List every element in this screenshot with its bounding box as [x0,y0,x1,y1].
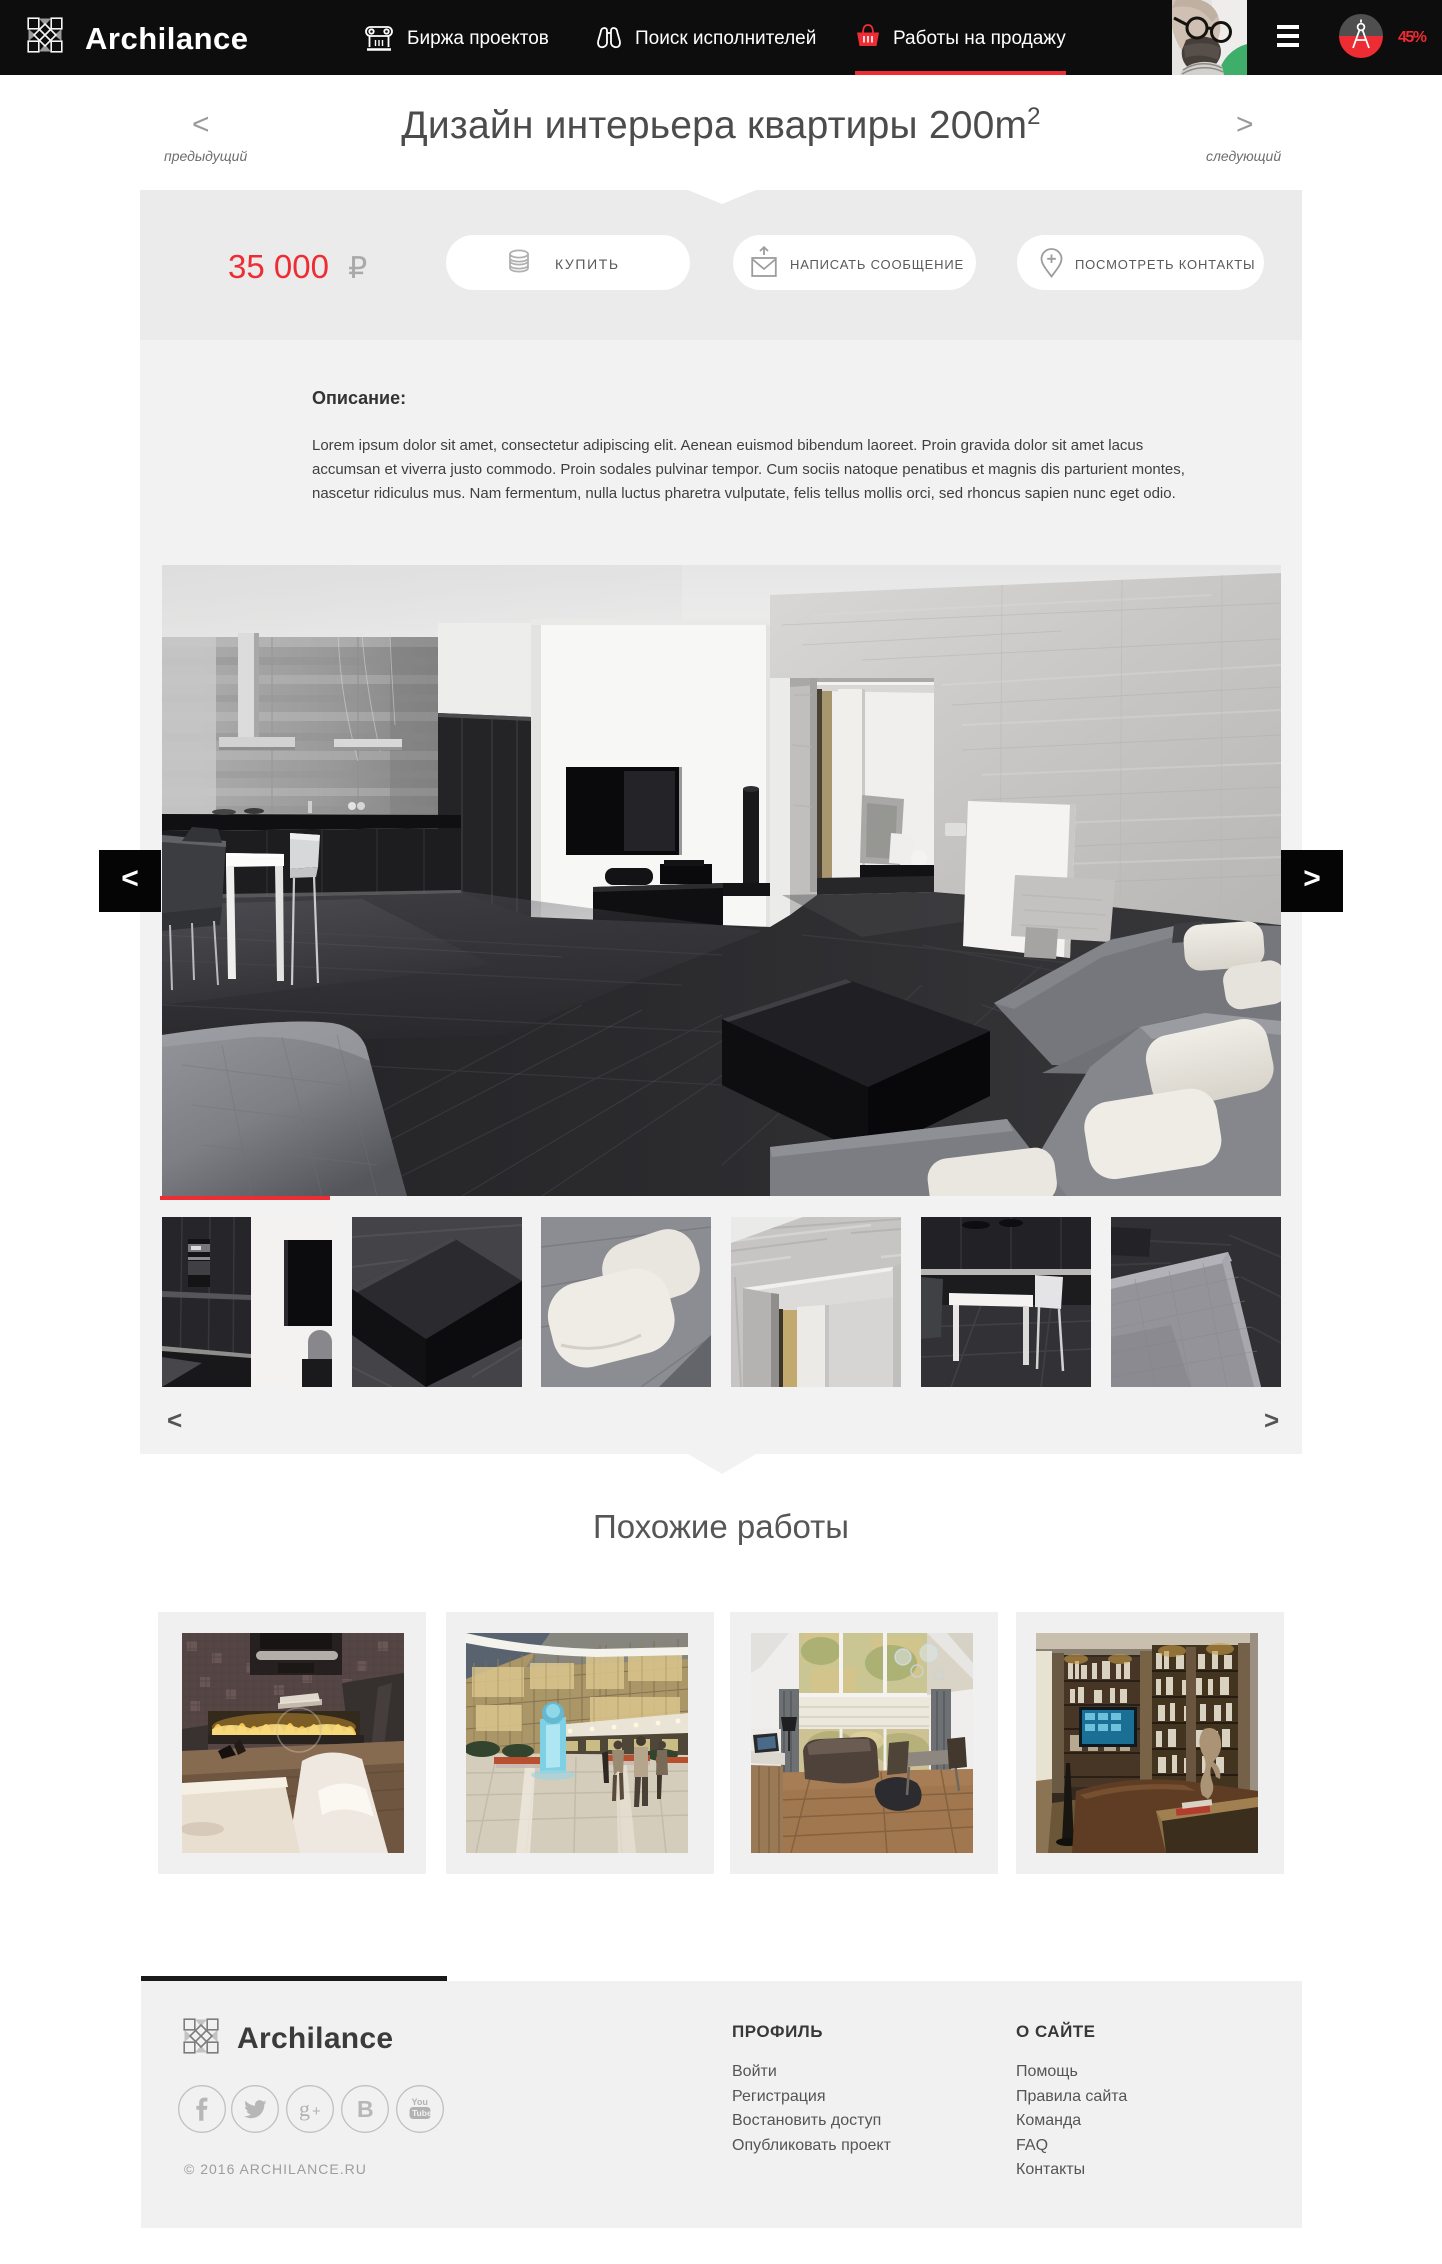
svg-text:g: g [299,2096,310,2121]
svg-text:Tube: Tube [412,2108,432,2118]
svg-text:B: B [357,2096,374,2122]
svg-text:+: + [312,2103,321,2120]
svg-text:You: You [412,2097,428,2107]
